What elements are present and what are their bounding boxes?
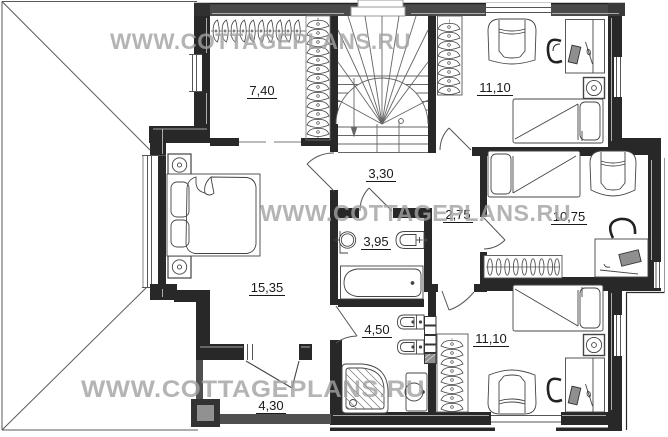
svg-text:3,30: 3,30 xyxy=(368,166,393,181)
svg-text:7,40: 7,40 xyxy=(249,83,274,98)
svg-text:WWW.COTTAGEPLANS.RU: WWW.COTTAGEPLANS.RU xyxy=(260,200,571,226)
svg-text:15,35: 15,35 xyxy=(251,280,284,295)
svg-text:11,10: 11,10 xyxy=(475,331,507,346)
svg-text:4,50: 4,50 xyxy=(364,322,389,337)
svg-text:3,95: 3,95 xyxy=(363,234,388,249)
svg-text:11,10: 11,10 xyxy=(479,80,511,95)
svg-text:WWW.COTTAGEPLANS.RU: WWW.COTTAGEPLANS.RU xyxy=(81,376,425,403)
svg-text:WWW.COTTAGEPLANS.RU: WWW.COTTAGEPLANS.RU xyxy=(110,29,411,54)
